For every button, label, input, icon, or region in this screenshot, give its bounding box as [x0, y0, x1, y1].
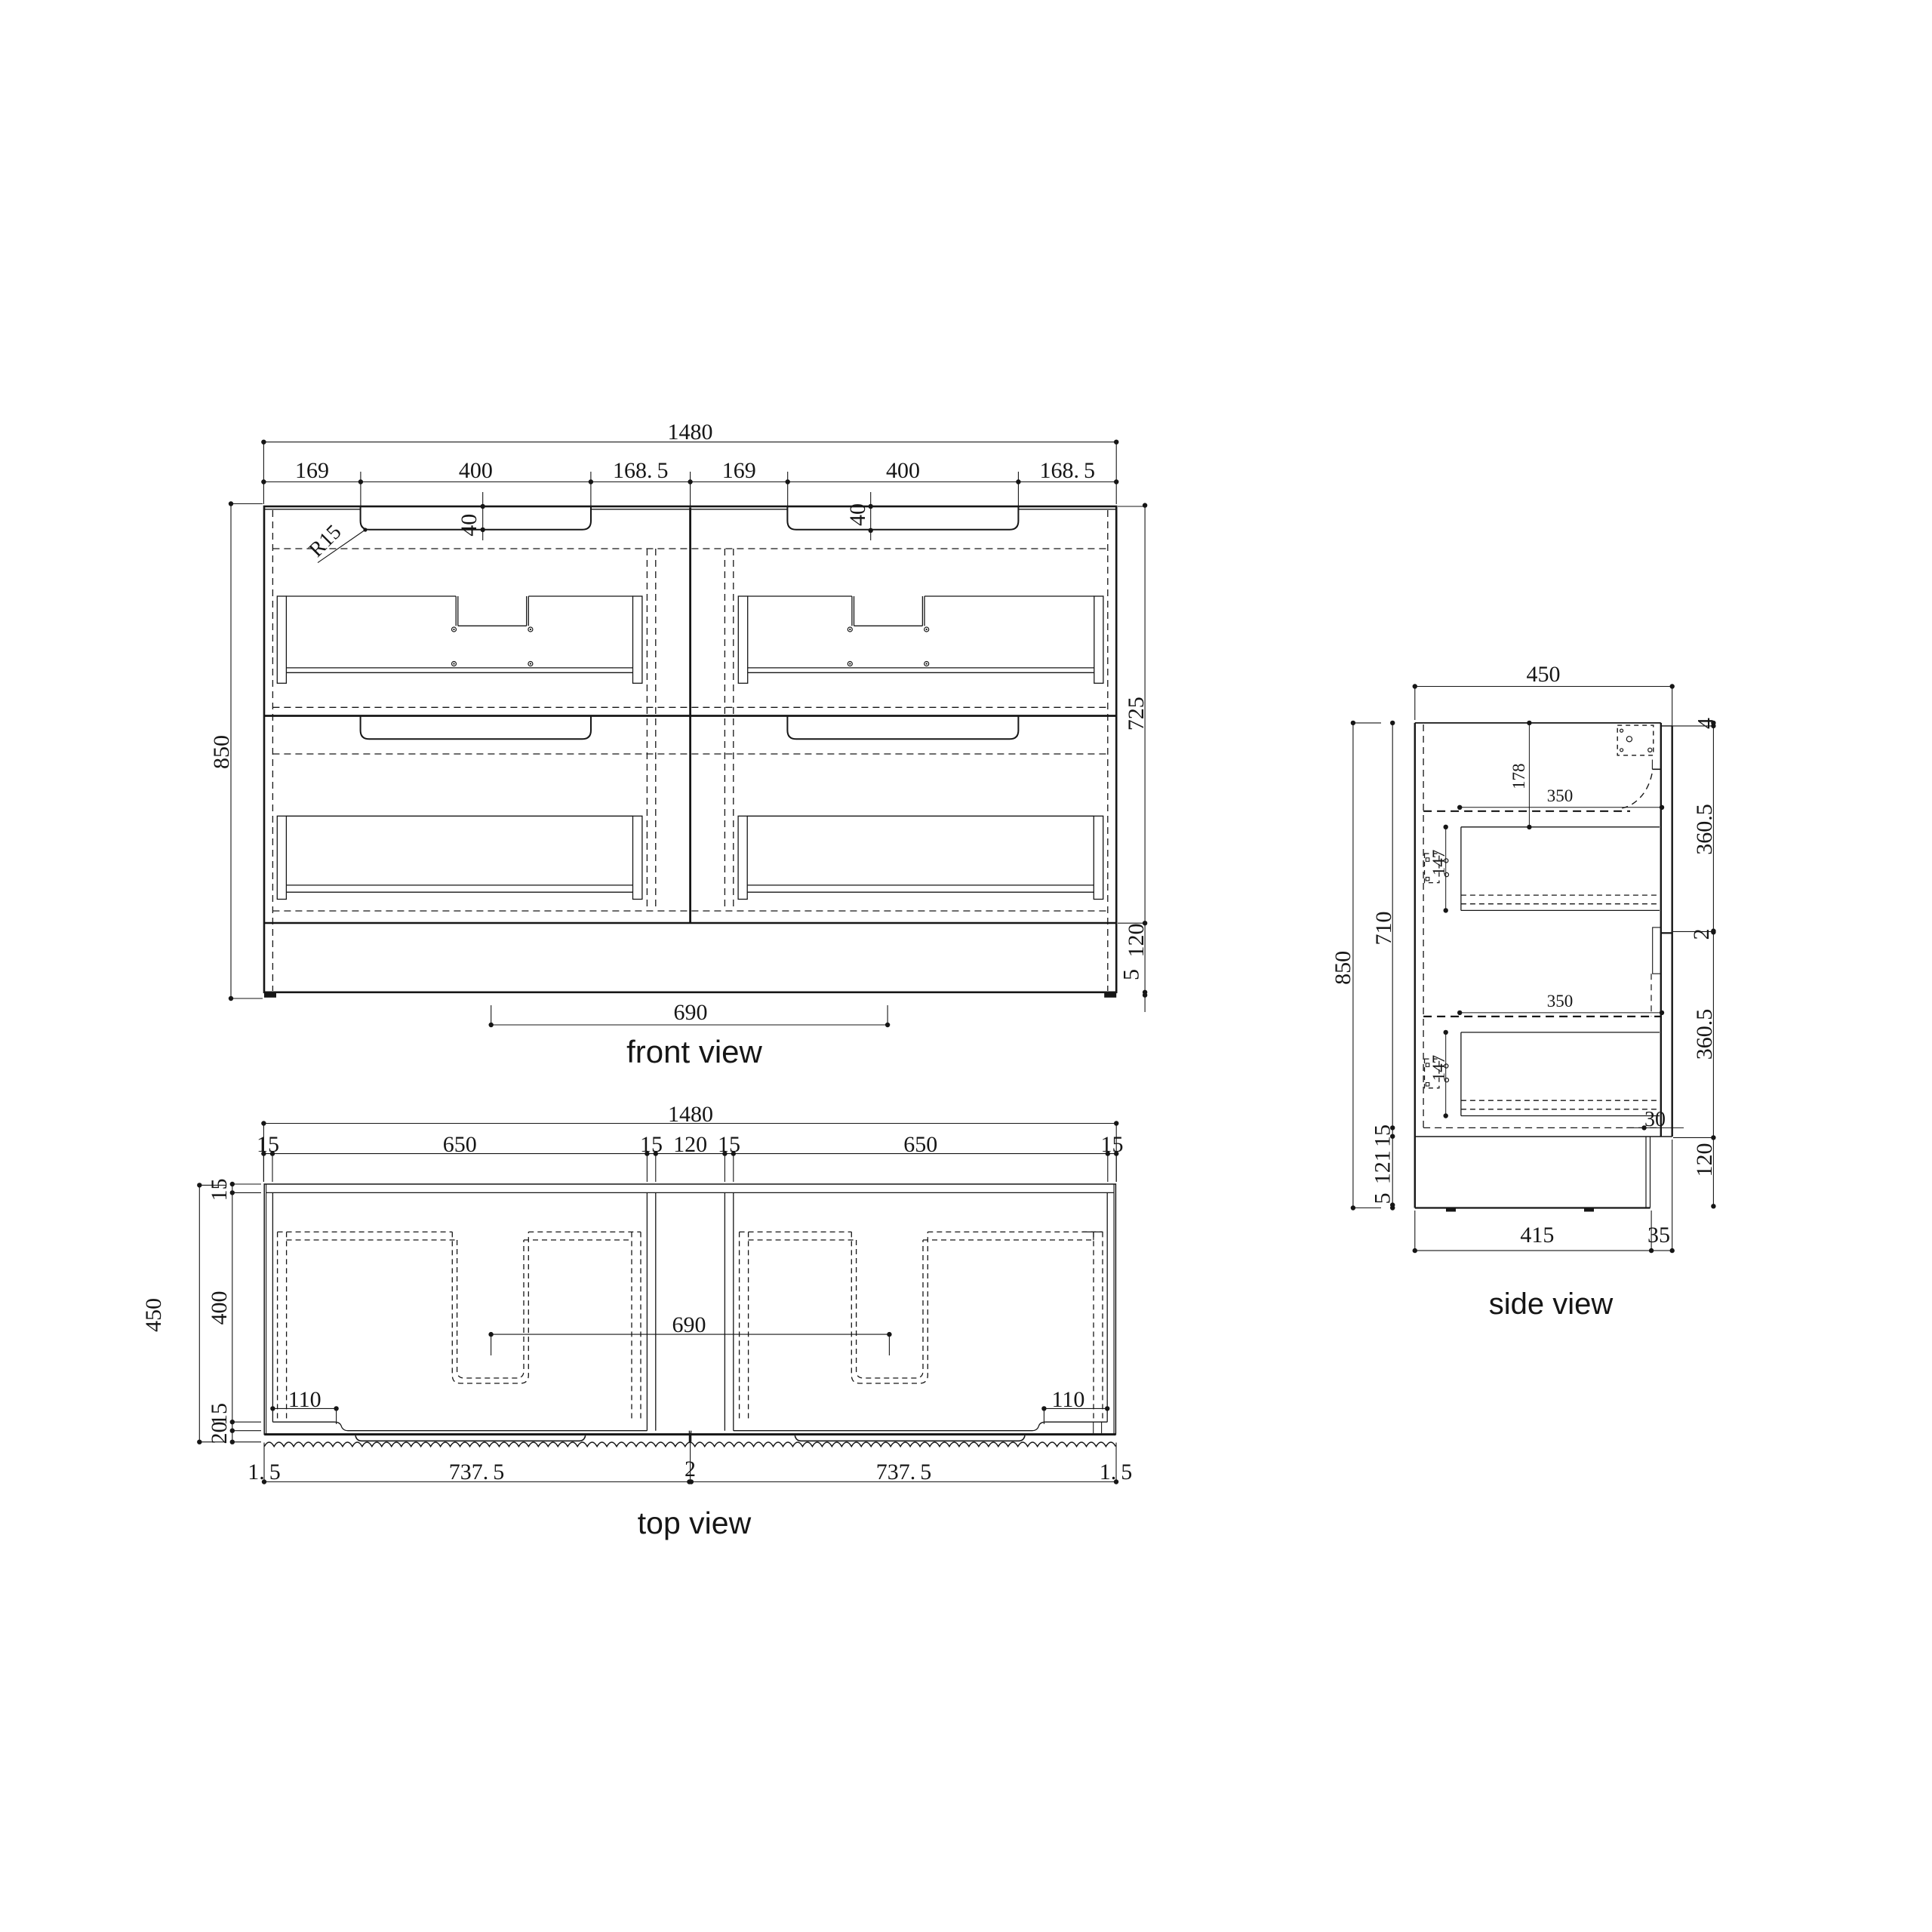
svg-text:147: 147 [1429, 850, 1448, 876]
svg-text:1. 5: 1. 5 [248, 1460, 281, 1484]
svg-text:350: 350 [1547, 786, 1574, 805]
svg-text:2: 2 [1689, 929, 1714, 940]
svg-text:15: 15 [718, 1132, 740, 1157]
svg-text:400: 400 [459, 458, 493, 483]
svg-text:110: 110 [1052, 1387, 1085, 1412]
svg-text:5: 5 [1119, 969, 1144, 980]
svg-text:168. 5: 168. 5 [613, 458, 669, 483]
svg-text:690: 690 [672, 1312, 706, 1337]
svg-text:737. 5: 737. 5 [449, 1460, 505, 1484]
svg-text:850: 850 [209, 735, 234, 769]
svg-text:725: 725 [1124, 697, 1149, 731]
svg-text:650: 650 [903, 1132, 937, 1157]
svg-text:2: 2 [685, 1457, 696, 1481]
svg-text:40: 40 [457, 514, 481, 537]
svg-text:120: 120 [1124, 924, 1149, 958]
svg-text:650: 650 [443, 1132, 477, 1157]
svg-text:15: 15 [1101, 1132, 1124, 1157]
svg-text:169: 169 [295, 458, 329, 483]
svg-text:450: 450 [141, 1298, 166, 1332]
svg-text:147: 147 [1429, 1055, 1448, 1081]
svg-text:1. 5: 1. 5 [1100, 1460, 1133, 1484]
svg-text:737. 5: 737. 5 [876, 1460, 932, 1484]
svg-text:178: 178 [1509, 764, 1528, 790]
svg-text:400: 400 [886, 458, 920, 483]
svg-text:15: 15 [1371, 1124, 1395, 1147]
svg-text:15: 15 [257, 1132, 279, 1157]
svg-text:30: 30 [1644, 1108, 1666, 1131]
svg-text:120: 120 [673, 1132, 707, 1157]
svg-text:710: 710 [1371, 912, 1396, 946]
svg-text:top view: top view [638, 1506, 752, 1540]
svg-text:850: 850 [1331, 951, 1355, 985]
svg-text:400: 400 [207, 1291, 232, 1325]
svg-text:110: 110 [288, 1387, 321, 1412]
svg-text:15: 15 [640, 1132, 663, 1157]
svg-text:15: 15 [207, 1179, 232, 1201]
svg-text:side view: side view [1489, 1287, 1614, 1321]
svg-text:168. 5: 168. 5 [1040, 458, 1096, 483]
svg-text:4: 4 [1694, 718, 1718, 729]
svg-text:415: 415 [1520, 1223, 1554, 1247]
svg-text:169: 169 [722, 458, 756, 483]
svg-text:121: 121 [1371, 1150, 1395, 1184]
svg-text:35: 35 [1647, 1223, 1670, 1247]
svg-text:350: 350 [1547, 992, 1574, 1011]
svg-text:120: 120 [1692, 1143, 1717, 1177]
svg-text:690: 690 [674, 1000, 708, 1025]
svg-text:20: 20 [207, 1422, 232, 1444]
svg-text:5: 5 [1371, 1193, 1395, 1204]
svg-text:40: 40 [845, 503, 870, 526]
svg-text:360.5: 360.5 [1692, 804, 1717, 855]
svg-text:front view: front view [626, 1034, 762, 1069]
svg-text:1480: 1480 [668, 420, 713, 445]
svg-text:450: 450 [1527, 662, 1561, 687]
svg-text:360.5: 360.5 [1692, 1009, 1717, 1060]
svg-text:1480: 1480 [668, 1102, 713, 1127]
